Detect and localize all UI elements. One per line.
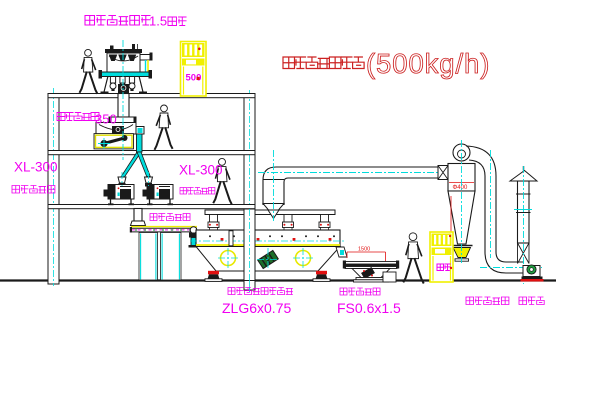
svg-text:1500: 1500 (358, 247, 370, 253)
svg-text:1.5: 1.5 (149, 14, 167, 29)
svg-text:XL-300: XL-300 (14, 160, 58, 175)
svg-text:FS0.6x1.5: FS0.6x1.5 (337, 300, 401, 316)
svg-text:ZLG6x0.75: ZLG6x0.75 (222, 300, 291, 316)
svg-text:350: 350 (95, 112, 117, 127)
svg-text:Φ400: Φ400 (453, 185, 468, 191)
svg-text:XL-300: XL-300 (179, 163, 223, 178)
svg-text:(500kg/h): (500kg/h) (366, 48, 490, 79)
